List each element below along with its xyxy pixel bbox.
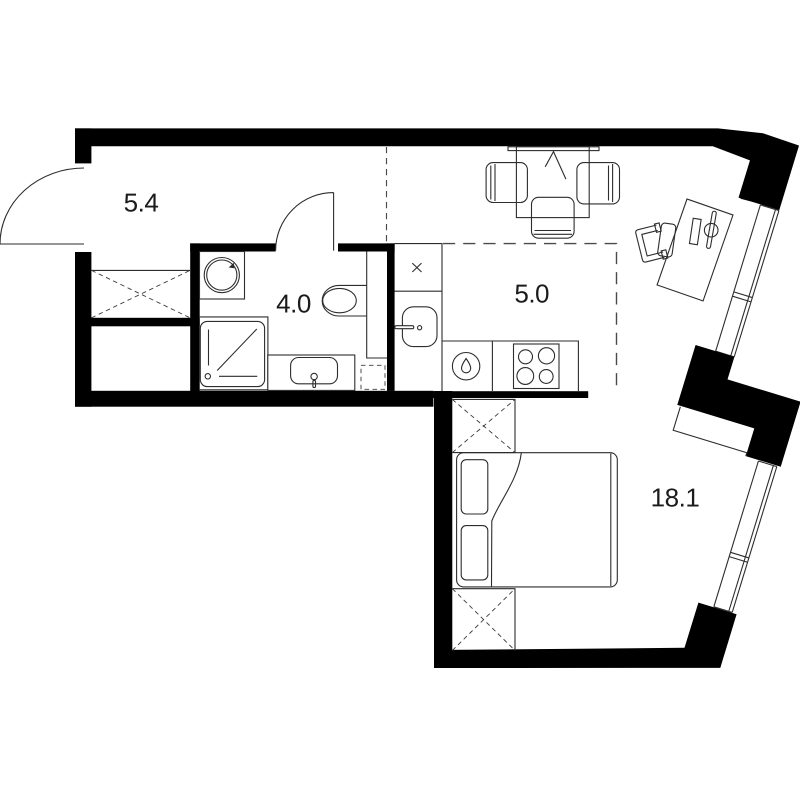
svg-text:5.0: 5.0 bbox=[514, 278, 549, 308]
svg-text:18.1: 18.1 bbox=[651, 482, 700, 512]
svg-text:4.0: 4.0 bbox=[276, 288, 311, 318]
svg-text:5.4: 5.4 bbox=[124, 187, 159, 217]
